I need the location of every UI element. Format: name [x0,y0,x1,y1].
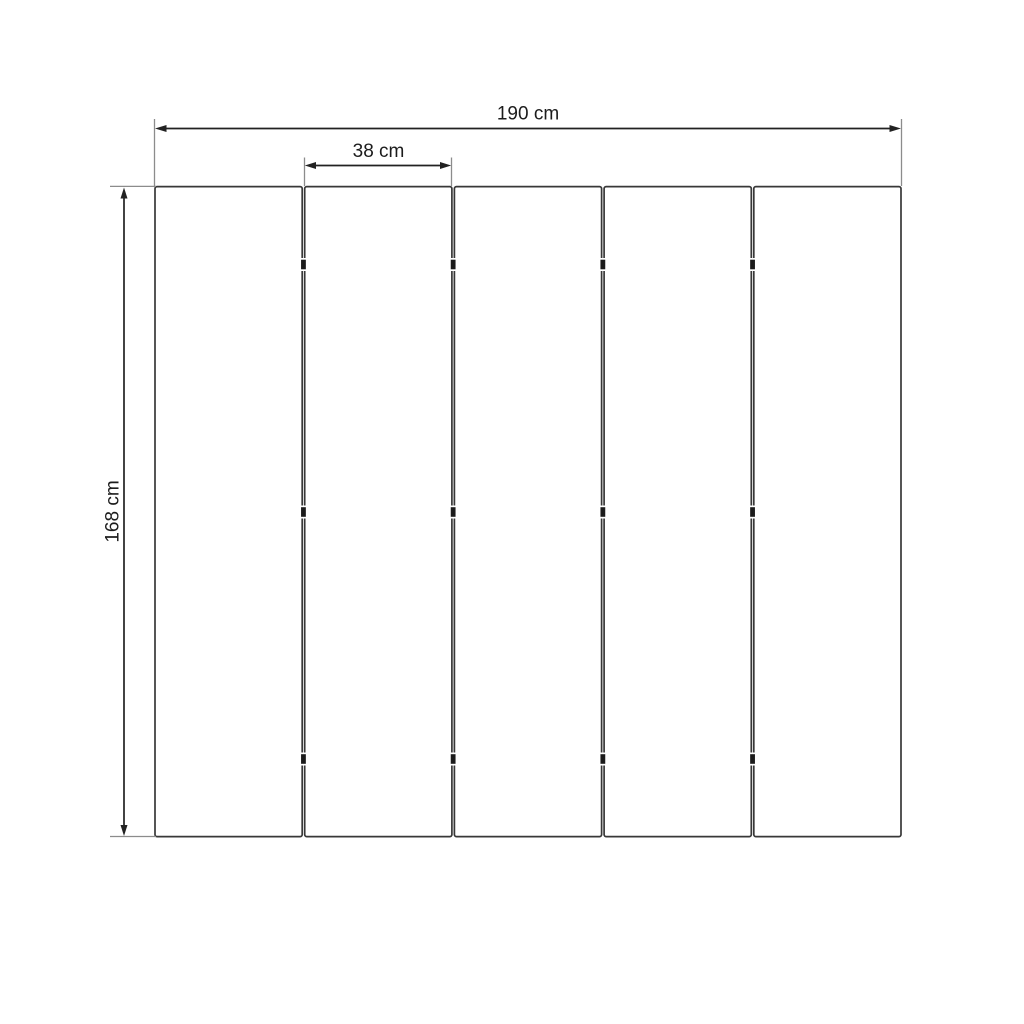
svg-text:168 cm: 168 cm [103,480,124,542]
svg-text:190 cm: 190 cm [497,104,559,125]
svg-text:38 cm: 38 cm [353,141,405,162]
